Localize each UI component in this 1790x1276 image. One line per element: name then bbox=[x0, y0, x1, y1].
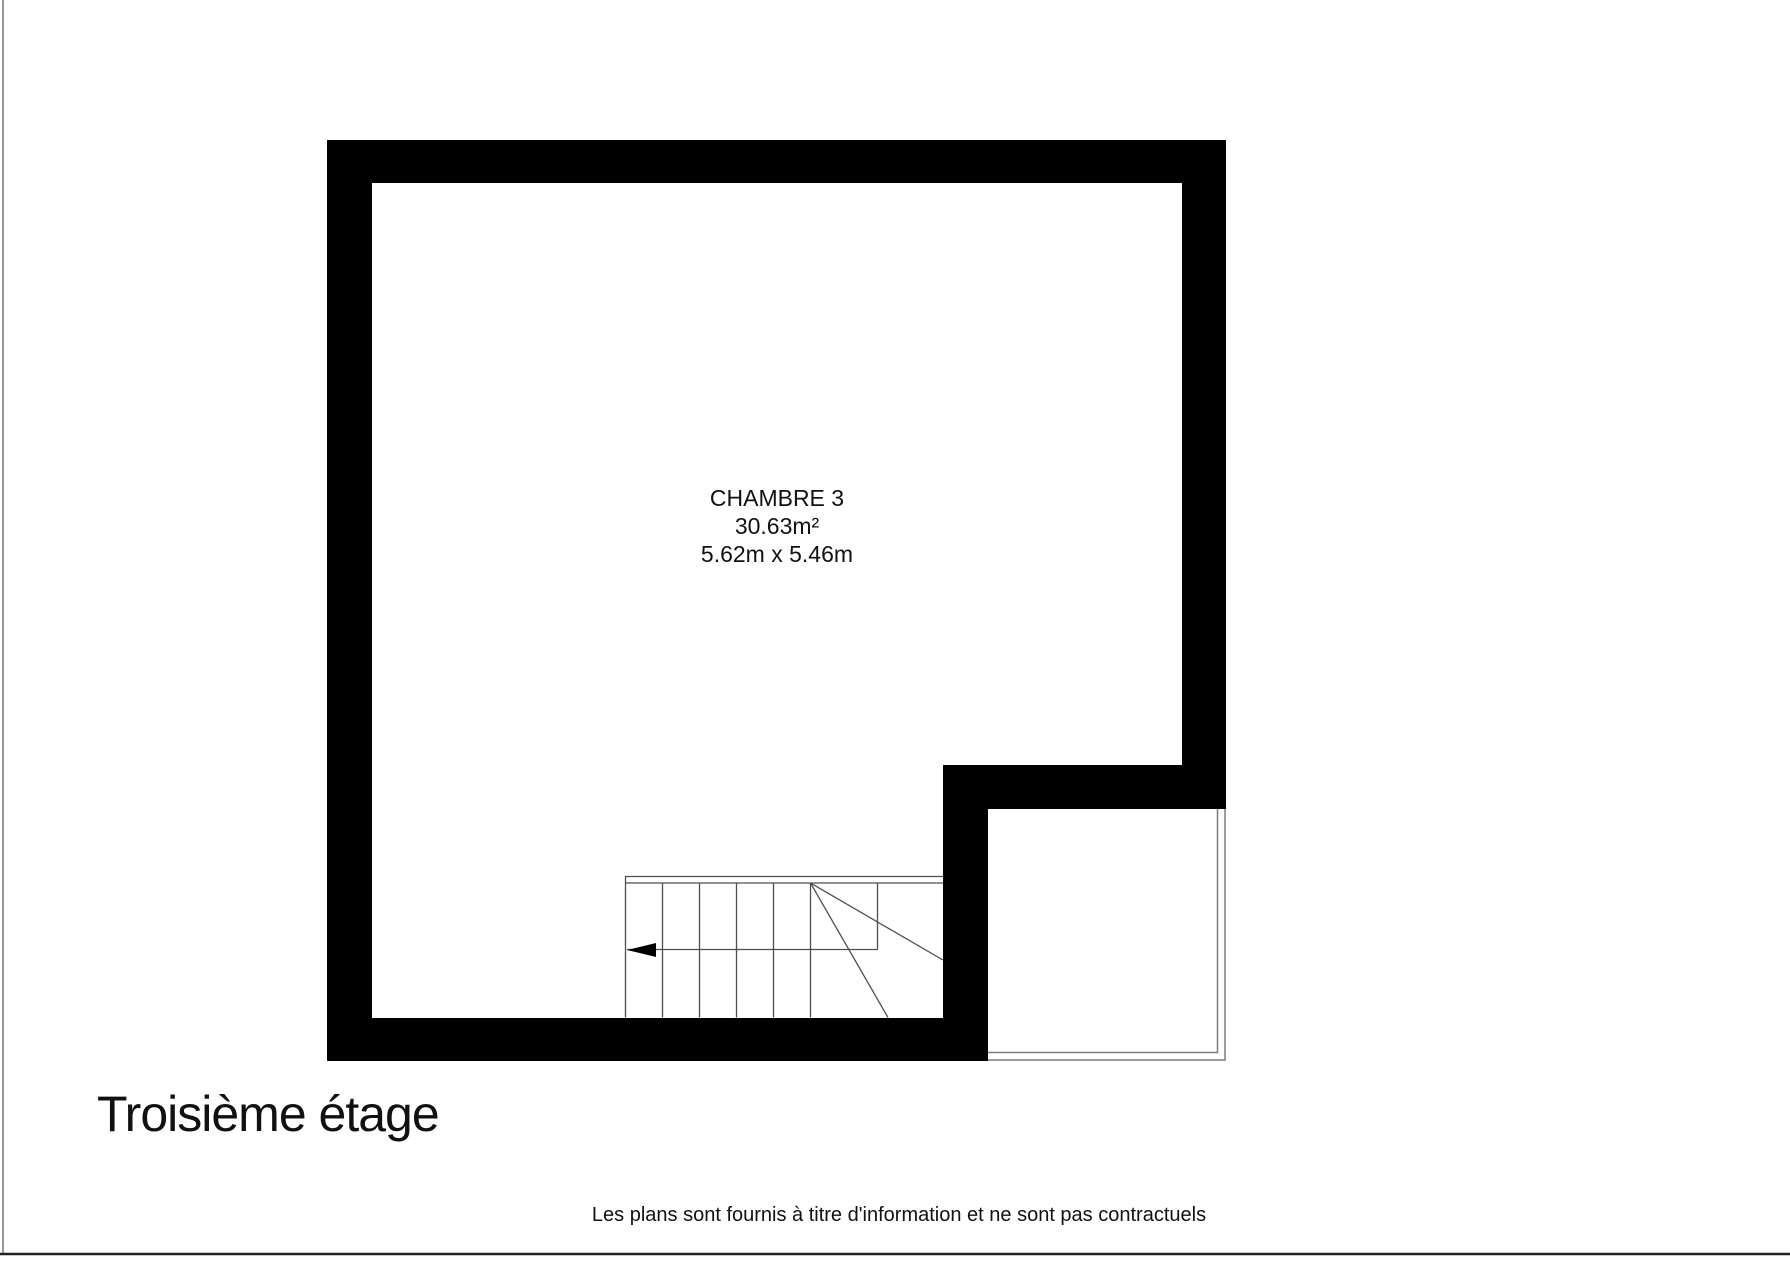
annex-outline bbox=[988, 809, 1225, 1060]
room-label: CHAMBRE 3 30.63m² 5.62m x 5.46m bbox=[577, 484, 977, 568]
disclaimer-text: Les plans sont fournis à titre d'informa… bbox=[499, 1203, 1299, 1227]
floor-plan-drawing bbox=[0, 0, 1790, 1276]
floor-plan-page: CHAMBRE 3 30.63m² 5.62m x 5.46m Troisièm… bbox=[0, 0, 1790, 1276]
walls bbox=[327, 140, 1226, 1061]
wall-top bbox=[327, 140, 1226, 183]
room-name: CHAMBRE 3 bbox=[577, 484, 977, 512]
annex-outline-inner bbox=[988, 809, 1218, 1053]
stair-direction-arrow bbox=[627, 943, 656, 957]
wall-right bbox=[1182, 140, 1226, 809]
room-dimensions: 5.62m x 5.46m bbox=[577, 540, 977, 568]
wall-bottom bbox=[327, 1018, 988, 1061]
annex-outline-outer bbox=[988, 809, 1225, 1060]
wall-left bbox=[327, 140, 372, 1061]
stair-winder-diagonal bbox=[811, 883, 944, 960]
stair-winder-diagonal bbox=[811, 883, 889, 1018]
wall-notch-vertical bbox=[943, 765, 988, 1061]
floor-title: Troisième étage bbox=[97, 1086, 439, 1142]
room-area: 30.63m² bbox=[577, 512, 977, 540]
page-frame bbox=[0, 0, 1790, 1254]
staircase bbox=[625, 877, 943, 1018]
